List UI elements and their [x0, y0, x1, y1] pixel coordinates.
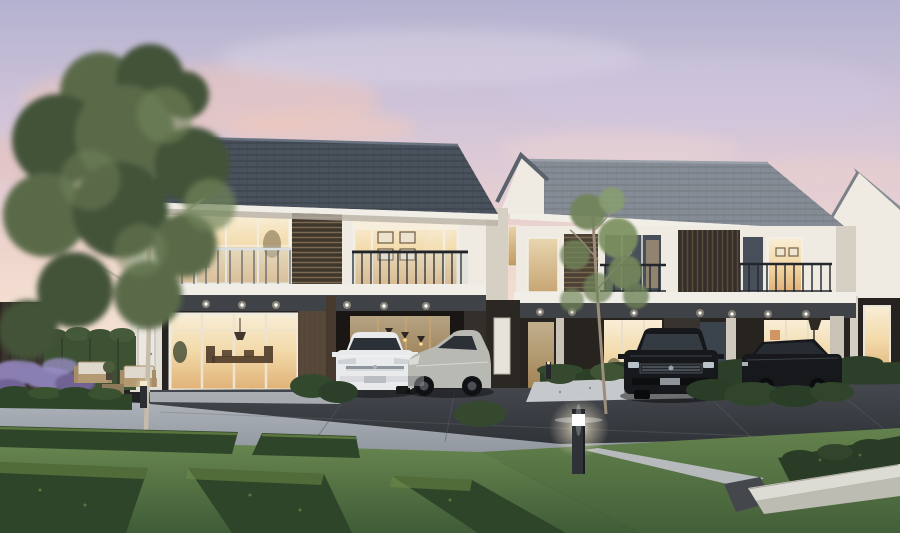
car-emblem	[669, 366, 674, 371]
wall-art	[770, 330, 780, 340]
chair-silhouette	[264, 346, 273, 363]
bench-seat	[75, 374, 111, 383]
interior-plant-silhouette	[173, 341, 187, 363]
building-2-upper-window-1	[528, 238, 558, 292]
chair-silhouette	[206, 346, 215, 363]
lamp-flare	[576, 404, 582, 436]
topiary-plant	[103, 361, 115, 373]
pendant-bulb	[403, 338, 407, 342]
chair-silhouette	[222, 350, 232, 357]
building-1-alley-door	[494, 318, 510, 374]
dining-table-silhouette	[212, 356, 264, 363]
wheel	[634, 390, 650, 399]
side-mirror	[717, 354, 724, 359]
bench-arm	[74, 366, 78, 383]
chair-silhouette	[244, 350, 254, 357]
building-2-balcony-rail-right	[740, 264, 832, 292]
headlight	[703, 362, 714, 368]
picture-frame	[400, 232, 415, 243]
mini-bollard-bulb	[547, 362, 550, 365]
car-emblem	[373, 365, 377, 369]
shrub	[590, 363, 626, 381]
mini-bollard-light	[546, 362, 551, 379]
bollard-post	[140, 384, 147, 408]
headlight	[628, 362, 639, 368]
side-mirror	[618, 354, 625, 359]
round-bush	[454, 401, 506, 427]
low-hedge-strip-left	[0, 386, 132, 410]
picture-frame	[789, 248, 798, 256]
headlight	[742, 362, 748, 366]
chrome-bar	[346, 369, 404, 371]
building-1-louver-screen	[292, 210, 342, 286]
building-1-canopy	[150, 295, 486, 311]
picture-frame	[378, 232, 393, 243]
lamp-head	[140, 381, 147, 386]
license-plate	[364, 376, 386, 383]
scene-canvas	[0, 0, 900, 533]
windshield	[640, 334, 704, 352]
building-1-slab-band	[150, 284, 486, 296]
wheel-rim	[468, 382, 477, 391]
license-plate	[660, 378, 680, 385]
side-mirror	[332, 352, 338, 357]
picture-frame	[776, 248, 785, 256]
pendant-bulb	[419, 342, 423, 346]
townhouse-dusk-render	[0, 0, 900, 533]
building-1-balustrade-right	[352, 252, 468, 285]
bench-arm	[152, 370, 156, 387]
bumper	[408, 376, 424, 386]
building-1-sliding-glass-doors	[170, 314, 298, 390]
hedge-block	[0, 462, 148, 533]
building-2-center-louver-panel	[678, 230, 740, 294]
windshield	[348, 338, 402, 352]
